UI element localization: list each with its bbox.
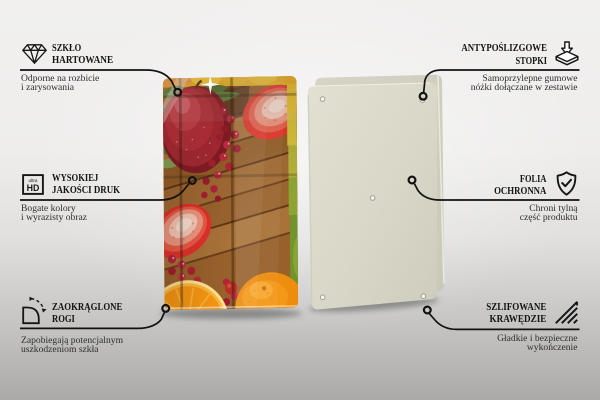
svg-text:HD: HD (27, 183, 40, 193)
